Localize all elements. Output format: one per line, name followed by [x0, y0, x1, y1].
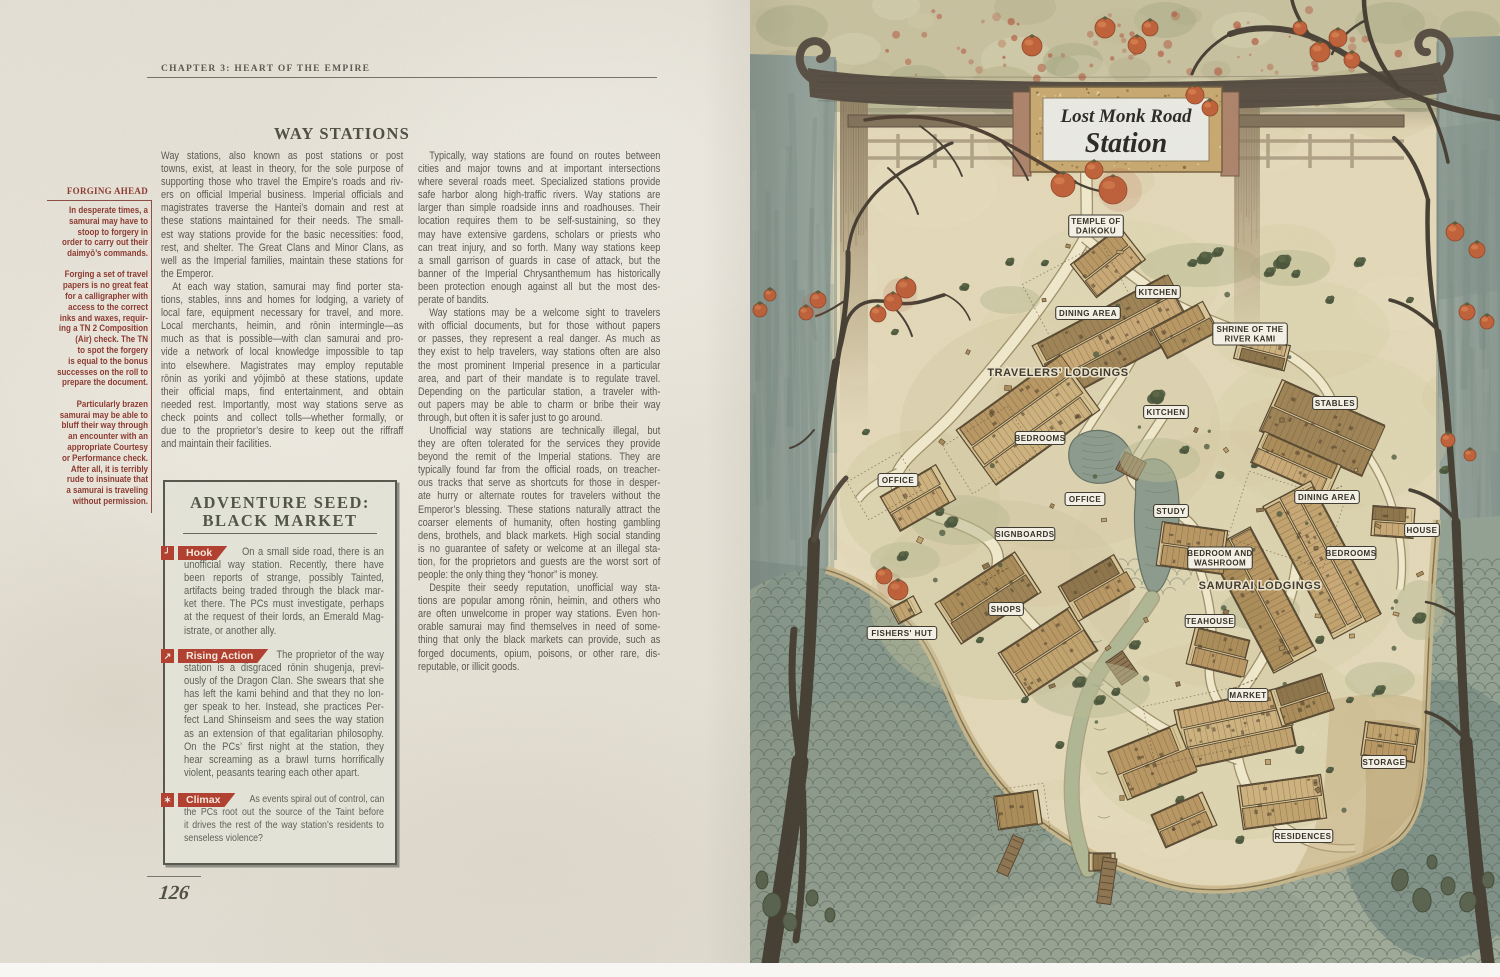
svg-text:BEDROOMS: BEDROOMS: [1325, 549, 1376, 558]
svg-text:OFFICE: OFFICE: [882, 476, 914, 485]
svg-text:BEDROOM AND: BEDROOM AND: [1187, 549, 1252, 558]
svg-text:TEAHOUSE: TEAHOUSE: [1186, 617, 1235, 626]
svg-text:OFFICE: OFFICE: [1069, 495, 1101, 504]
svg-text:STABLES: STABLES: [1315, 399, 1355, 408]
svg-text:SHOPS: SHOPS: [991, 605, 1022, 614]
svg-text:SHRINE OF THE: SHRINE OF THE: [1217, 325, 1284, 334]
svg-text:DINING AREA: DINING AREA: [1298, 493, 1356, 502]
svg-text:HOUSE: HOUSE: [1407, 526, 1438, 535]
svg-text:STORAGE: STORAGE: [1363, 758, 1406, 767]
svg-text:RESIDENCES: RESIDENCES: [1274, 832, 1331, 841]
svg-text:SAMURAI LODGINGS: SAMURAI LODGINGS: [1199, 580, 1322, 592]
svg-text:RIVER KAMI: RIVER KAMI: [1224, 335, 1275, 344]
svg-text:TRAVELERS’ LODGINGS: TRAVELERS’ LODGINGS: [987, 367, 1128, 379]
svg-text:FISHERS' HUT: FISHERS' HUT: [871, 629, 932, 638]
svg-text:SIGNBOARDS: SIGNBOARDS: [995, 530, 1054, 539]
svg-text:DINING AREA: DINING AREA: [1059, 309, 1117, 318]
svg-text:KITCHEN: KITCHEN: [1138, 288, 1177, 297]
svg-text:WASHROOM: WASHROOM: [1194, 559, 1246, 568]
svg-text:BEDROOMS: BEDROOMS: [1014, 434, 1065, 443]
svg-text:STUDY: STUDY: [1156, 507, 1186, 516]
svg-text:KITCHEN: KITCHEN: [1146, 408, 1185, 417]
svg-text:TEMPLE OF: TEMPLE OF: [1071, 217, 1120, 226]
svg-text:MARKET: MARKET: [1229, 691, 1266, 700]
svg-text:DAIKOKU: DAIKOKU: [1076, 227, 1116, 236]
